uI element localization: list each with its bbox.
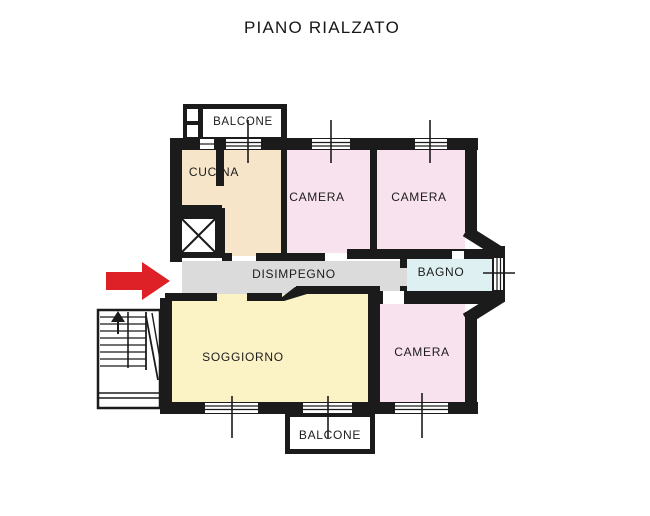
room-label-camera-nord-ovest: CAMERA [289, 190, 345, 204]
wall-corridor-c [347, 249, 492, 259]
balcone-shaft-2 [187, 125, 198, 137]
window [226, 139, 261, 149]
elevator-icon [180, 217, 217, 254]
staircase [98, 310, 163, 408]
room-label-cucina: CUCINA [189, 165, 239, 179]
wall-between-cameras [370, 138, 377, 253]
wall-bagno-west-a [400, 249, 407, 268]
wall-anteroom-camera [281, 150, 287, 256]
room-label-soggiorno: SOGGIORNO [202, 350, 284, 364]
wall-east-upper [465, 138, 477, 232]
door-niche-camera-ne [452, 251, 464, 259]
wall-soggiorno-north-b [247, 293, 282, 301]
room-label-disimpegno: DISIMPEGNO [252, 267, 336, 281]
wall-soggiorno-north-a [165, 293, 217, 301]
wall-corridor-a [222, 253, 232, 261]
window [200, 139, 214, 149]
room-label-balcone-top: BALCONE [213, 116, 273, 128]
wall-east-lower [465, 312, 477, 414]
bagno-window [494, 258, 503, 290]
room-label-camera-sud-est: CAMERA [394, 345, 450, 359]
room-soggiorno [172, 294, 372, 404]
wall-soggiorno-east [368, 286, 380, 404]
wall-soggiorno-north-c [296, 286, 372, 294]
wall-corridor-b [256, 253, 325, 261]
room-label-camera-nord-est: CAMERA [391, 190, 447, 204]
room-label-balcone-bottom: BALCONE [299, 428, 361, 442]
floorplan-page: PIANO RIALZATO BALCONE CUCINA CAMERA CAM… [0, 0, 650, 516]
page-title: PIANO RIALZATO [244, 18, 400, 38]
balcone-shaft-1 [187, 109, 198, 121]
entrance-arrow-icon [106, 262, 170, 300]
room-label-bagno: BAGNO [418, 265, 465, 279]
wall-west-lower [160, 298, 172, 410]
door-camera-se [383, 291, 404, 304]
window [415, 139, 447, 149]
